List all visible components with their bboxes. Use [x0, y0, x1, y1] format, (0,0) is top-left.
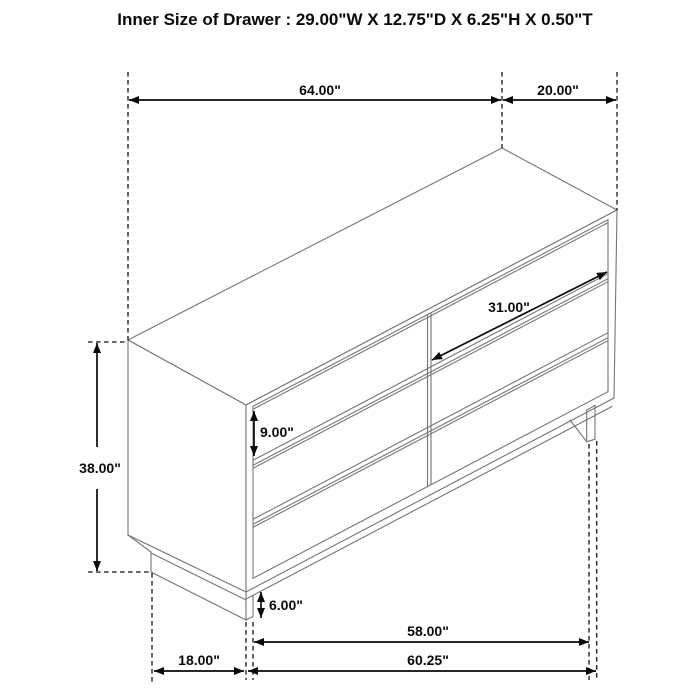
- dim-label-overall-height: 38.00": [79, 460, 121, 476]
- dim-label-bottom-inner-width: 58.00": [407, 623, 449, 639]
- dim-label-top-depth: 20.00": [537, 82, 579, 98]
- front-left-leg-bottom: [246, 617, 253, 621]
- dim-label-bottom-side-depth: 18.00": [178, 652, 220, 668]
- dim-label-drawer-height: 9.00": [260, 424, 294, 440]
- dim-label-top-width: 64.00": [299, 82, 341, 98]
- dresser-figure: [128, 148, 617, 620]
- dim-label-drawer-width: 31.00": [488, 299, 530, 315]
- dim-label-bottom-overall-width: 60.25": [407, 652, 449, 668]
- dim-label-base-height: 6.00": [269, 597, 303, 613]
- diagram-title: Inner Size of Drawer : 29.00"W X 12.75"D…: [117, 10, 593, 29]
- front-right-leg-side-edge: [570, 420, 587, 442]
- dresser-dimension-diagram: Inner Size of Drawer : 29.00"W X 12.75"D…: [0, 0, 700, 700]
